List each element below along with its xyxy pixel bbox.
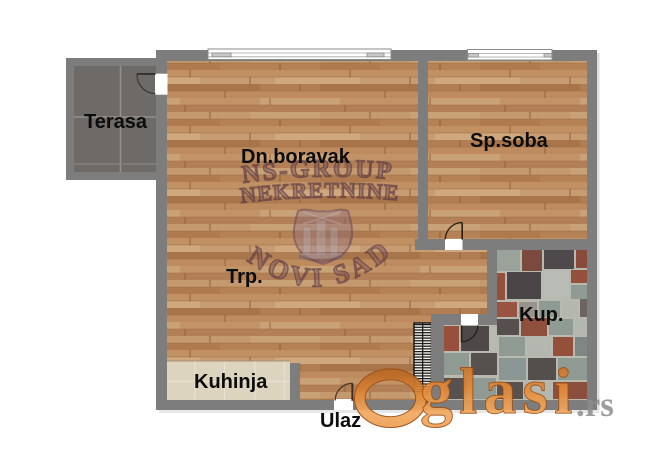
svg-text:Terasa: Terasa bbox=[84, 111, 148, 133]
svg-text:Dn.boravak: Dn.boravak bbox=[241, 146, 351, 168]
svg-text:.rs: .rs bbox=[576, 385, 614, 424]
svg-text:glasi: glasi bbox=[420, 355, 578, 428]
svg-text:Sp.soba: Sp.soba bbox=[470, 130, 549, 152]
svg-text:Kup.: Kup. bbox=[519, 304, 563, 326]
svg-text:Ulaz: Ulaz bbox=[320, 410, 361, 432]
svg-text:Trp.: Trp. bbox=[226, 266, 263, 288]
svg-text:Kuhinja: Kuhinja bbox=[194, 371, 268, 393]
